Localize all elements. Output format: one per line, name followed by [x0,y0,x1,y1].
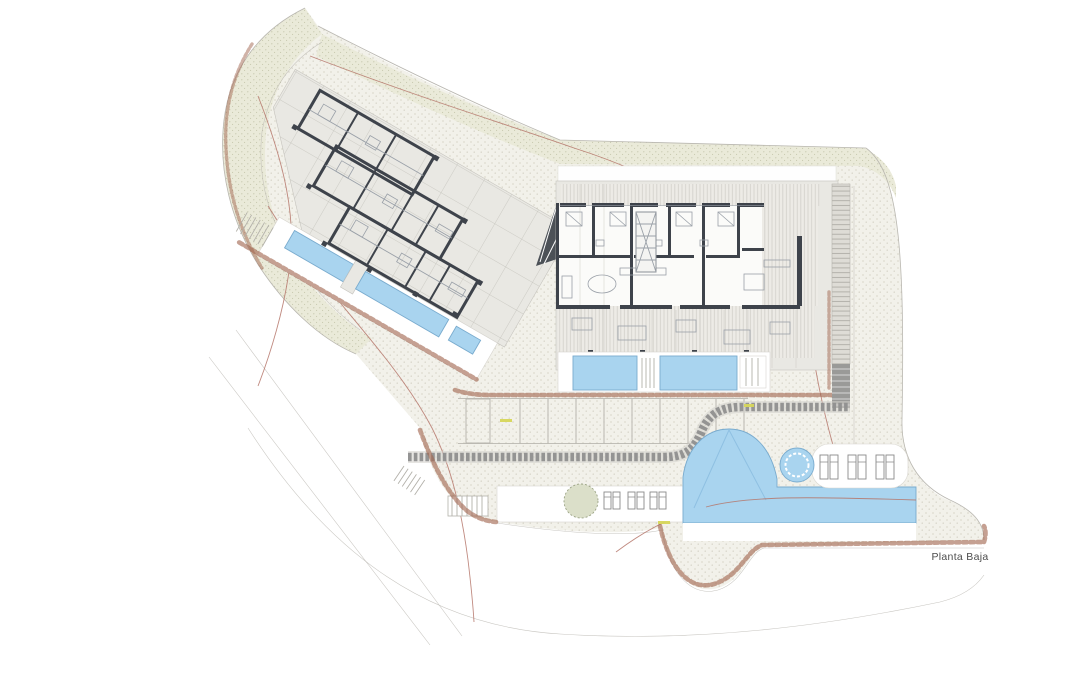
stair-core [636,212,656,272]
pergola-steps [832,184,850,364]
roof-hatch-strip [560,184,820,206]
terrace-hatch-east [762,206,818,306]
unit-pool [573,356,637,390]
floor-plan-page: Planta Baja [0,0,1070,682]
pool-platform [740,356,766,388]
pool-apron [683,523,916,541]
tree-circle [564,484,598,518]
right-wing-roof-margin [558,166,836,181]
plan-title: Planta Baja [931,551,988,563]
site-plan-canvas: Planta Baja [0,0,1070,682]
unit-pool [660,356,737,390]
plaza-loungers [604,492,666,509]
